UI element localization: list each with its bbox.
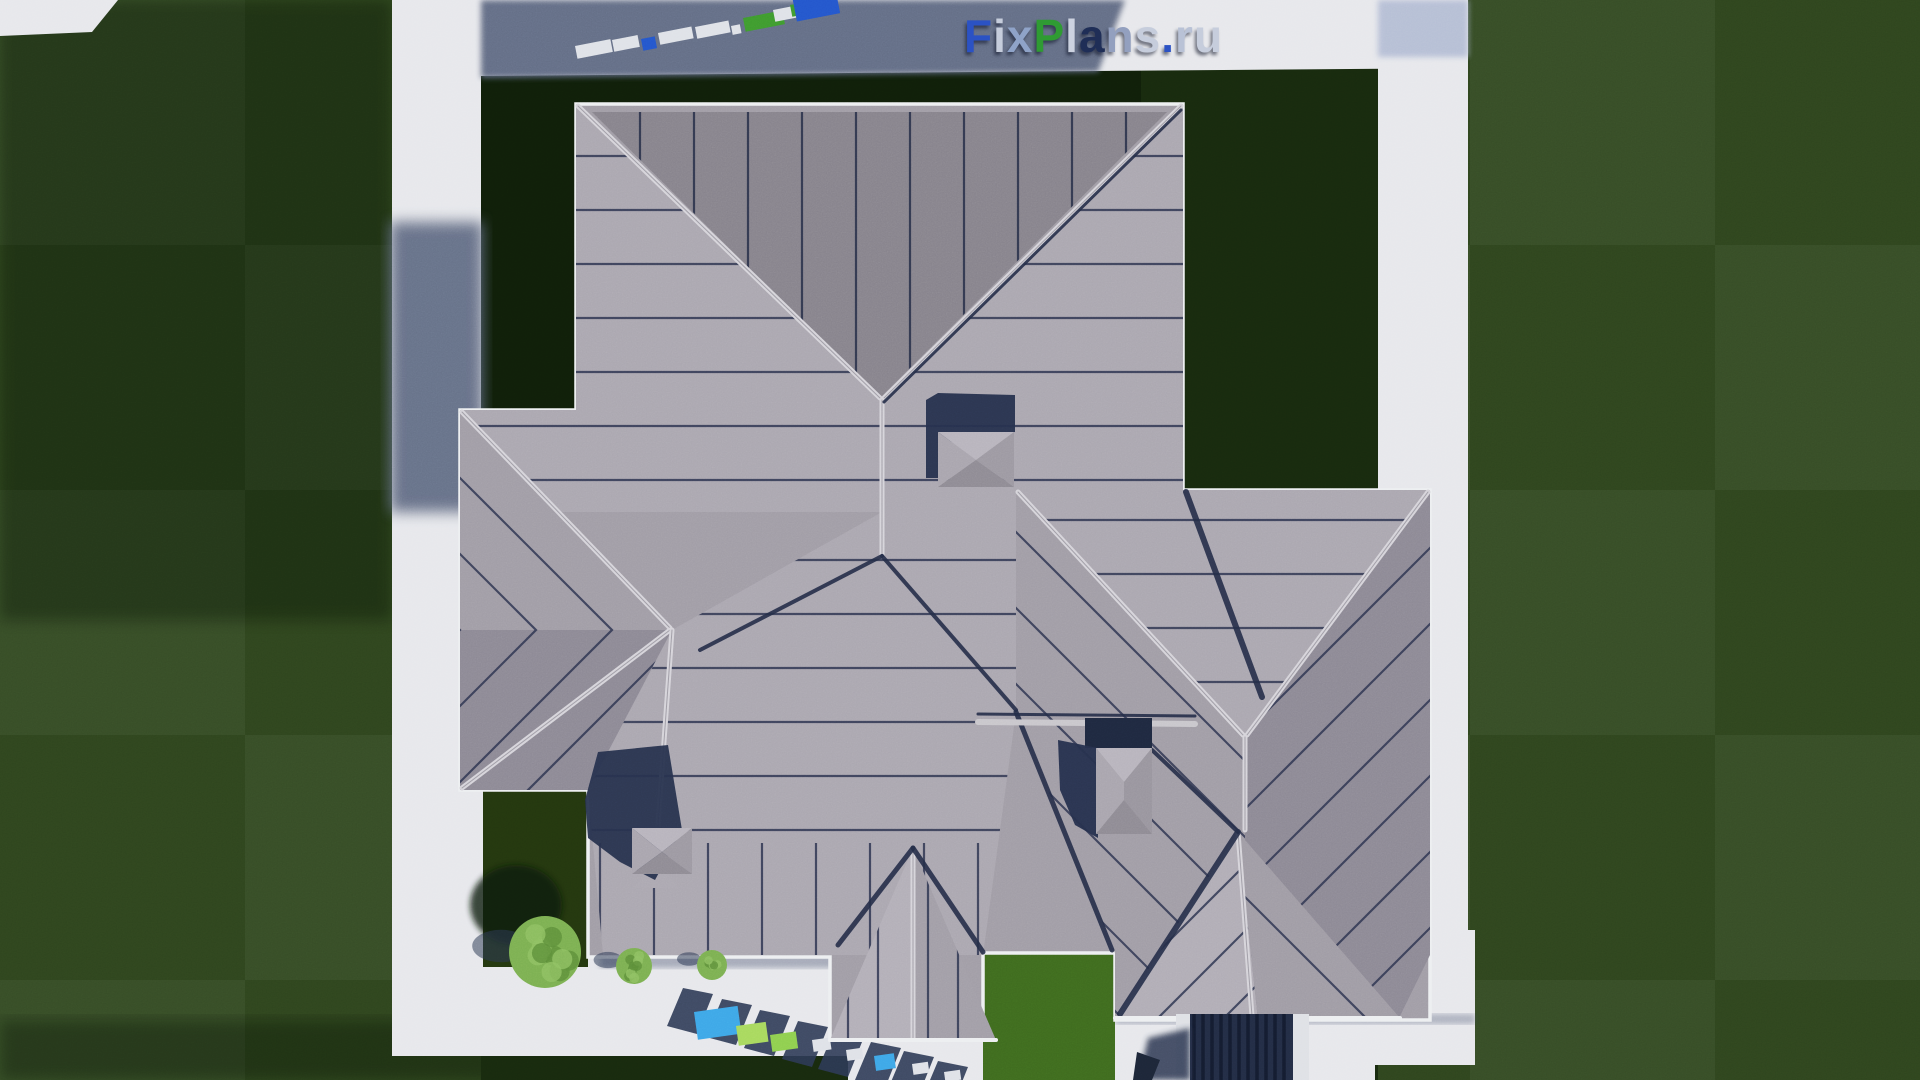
watermark-letter: u <box>1194 10 1223 62</box>
watermark-letter: . <box>1161 10 1175 62</box>
watermark-letter: s <box>1135 10 1162 62</box>
watermark-letter: n <box>1106 10 1135 62</box>
scene-canvas <box>0 0 1920 1080</box>
watermark-letter: a <box>1079 10 1106 62</box>
watermark-letter: r <box>1175 10 1194 62</box>
watermark-letter: l <box>1065 10 1079 62</box>
grain-overlay <box>0 0 1920 1080</box>
watermark-letter: F <box>964 10 993 62</box>
watermark: FixPlans.ru <box>964 10 1223 62</box>
watermark-letter: P <box>1033 10 1065 62</box>
aerial-roof-plan-render: FixPlans.ru <box>0 0 1920 1080</box>
watermark-letter: i <box>993 10 1007 62</box>
watermark-letter: x <box>1007 10 1034 62</box>
